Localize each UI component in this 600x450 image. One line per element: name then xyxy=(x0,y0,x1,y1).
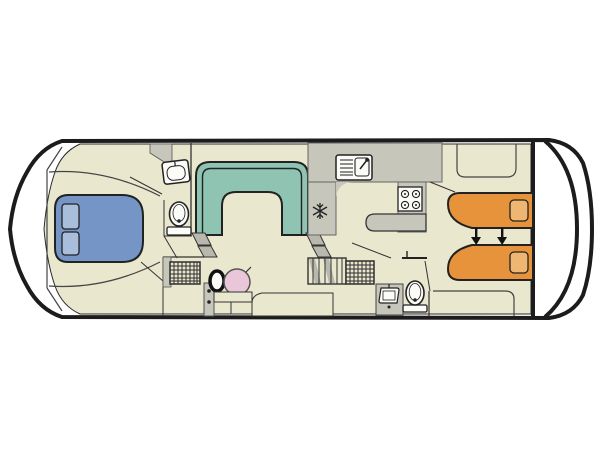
counter-left-column xyxy=(308,182,336,235)
stove-icon xyxy=(398,187,422,211)
counter-top-strip xyxy=(308,143,442,182)
shower-grid xyxy=(170,262,200,284)
hinge-dot xyxy=(207,300,211,304)
galley-sink-icon xyxy=(336,155,372,180)
washbasin-icon xyxy=(162,159,190,184)
pillow xyxy=(62,204,79,229)
steering-wheel xyxy=(224,269,250,295)
hinge-dot xyxy=(207,289,211,293)
helm-step xyxy=(214,292,252,302)
pillow xyxy=(510,200,528,221)
toilet-icon xyxy=(167,202,191,235)
pillow xyxy=(62,232,79,255)
pillow xyxy=(510,252,528,273)
boat-floorplan-svg xyxy=(0,0,600,450)
slatted-stairs xyxy=(308,258,346,284)
helm-seat xyxy=(210,271,224,291)
shower-grid xyxy=(346,261,374,284)
boat-floorplan-canvas xyxy=(0,0,600,450)
helm-platform xyxy=(252,293,333,316)
peninsula-counter xyxy=(366,214,426,231)
washbasin-icon xyxy=(376,284,403,315)
